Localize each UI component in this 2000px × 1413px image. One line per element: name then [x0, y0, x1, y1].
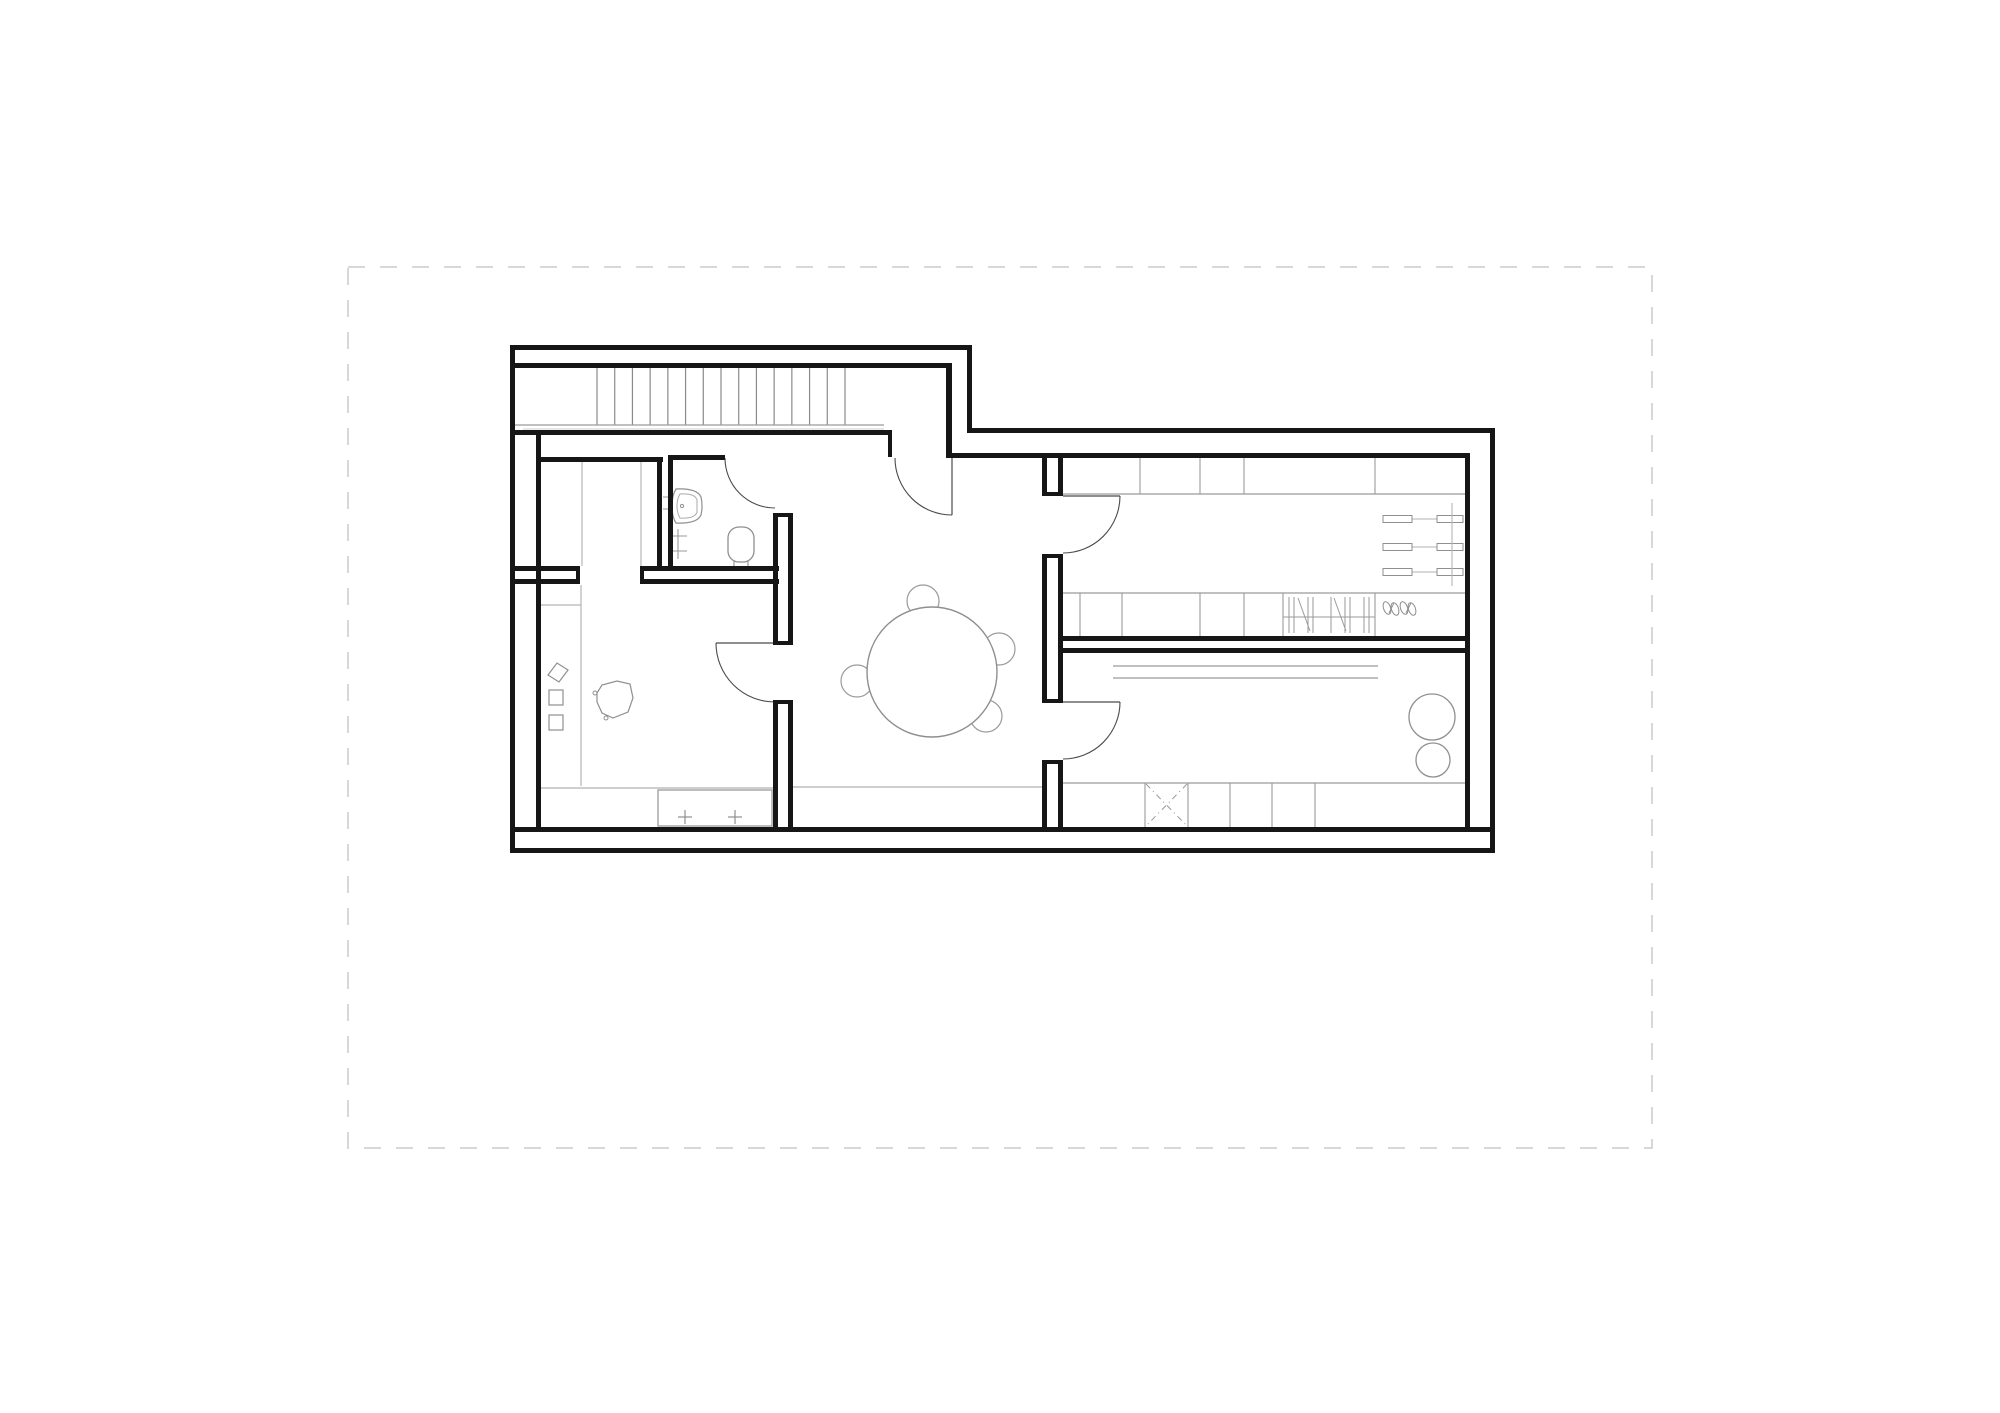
- wall-segment: [1042, 760, 1047, 831]
- dumbbell-plate: [1437, 569, 1463, 576]
- wall-segment: [513, 363, 951, 368]
- armchair-leg: [604, 716, 608, 720]
- dumbbell-plate: [1437, 516, 1463, 523]
- wall-segment: [1490, 428, 1495, 853]
- door-bathroom-swing: [725, 458, 775, 508]
- wall-segment: [1042, 492, 1063, 496]
- wall-segment: [640, 566, 779, 571]
- dumbbell-plate: [1383, 544, 1412, 551]
- door-gym-swing: [1063, 496, 1120, 553]
- wall-segment: [888, 430, 892, 457]
- door-stairs-hall-swing: [895, 458, 952, 515]
- wall-segment: [513, 566, 580, 571]
- wall-segment: [788, 700, 793, 831]
- wall-segment: [773, 513, 793, 517]
- wall-segment: [946, 363, 952, 458]
- wall-segment: [510, 345, 515, 853]
- wall-segment: [967, 345, 972, 433]
- wall-segment: [668, 455, 673, 571]
- wall-segment: [510, 345, 972, 350]
- floor-plan-svg: [0, 0, 2000, 1413]
- wall-segment: [1058, 453, 1063, 496]
- wall-segment: [773, 700, 793, 704]
- armchair: [597, 681, 633, 718]
- wall-segment: [576, 566, 580, 584]
- rack-item: [1334, 598, 1346, 631]
- wall-segment: [513, 579, 580, 584]
- wall-segment: [657, 457, 662, 571]
- kitchen-counter: [658, 790, 772, 826]
- tank: [1416, 743, 1450, 777]
- wall-segment: [513, 827, 1491, 832]
- door-living-room-swing: [716, 643, 775, 702]
- tank: [1409, 694, 1455, 740]
- dumbbell-plate: [1383, 516, 1412, 523]
- floor-plan-page: [0, 0, 2000, 1413]
- side-table: [549, 690, 563, 705]
- wall-segment: [513, 430, 892, 435]
- wall-segment: [1042, 760, 1063, 764]
- wall-segment: [773, 641, 793, 645]
- door-utility-room-swing: [1063, 702, 1120, 759]
- wall-segment: [788, 513, 793, 645]
- wall-segment: [946, 453, 1470, 458]
- wall-segment: [967, 428, 1495, 433]
- wall-segment: [1063, 648, 1466, 653]
- dumbbell-plate: [1437, 544, 1463, 551]
- stool: [548, 663, 568, 682]
- wall-segment: [1465, 453, 1470, 832]
- wall-segment: [1042, 554, 1063, 558]
- wall-segment: [668, 455, 725, 460]
- toilet: [728, 527, 754, 562]
- wall-segment: [773, 700, 778, 831]
- wall-segment: [1042, 453, 1047, 496]
- wall-segment: [538, 457, 663, 462]
- wall-segment: [1042, 554, 1047, 703]
- wall-segment: [536, 430, 541, 832]
- wall-segment: [1058, 554, 1063, 703]
- wall-segment: [1063, 636, 1466, 641]
- dumbbell-plate: [1383, 569, 1412, 576]
- wall-segment: [640, 566, 644, 584]
- wall-segment: [1058, 760, 1063, 831]
- wall-segment: [773, 513, 778, 645]
- wall-segment: [1042, 699, 1063, 703]
- dining-table: [867, 607, 997, 737]
- wall-segment: [510, 848, 1495, 853]
- wall-segment: [640, 579, 779, 584]
- side-table: [549, 715, 563, 730]
